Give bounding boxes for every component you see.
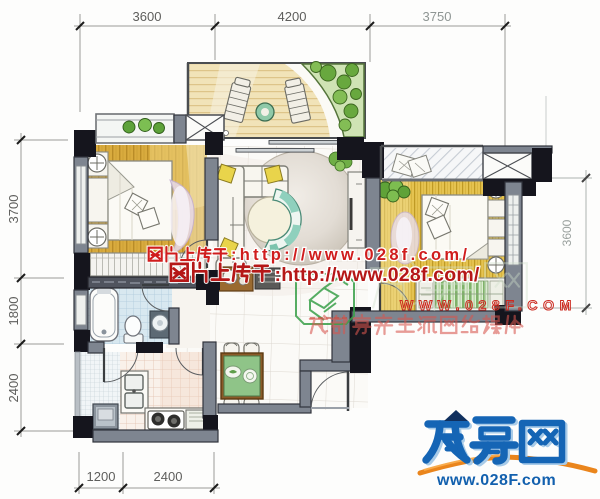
- svg-text:1200: 1200: [87, 469, 116, 484]
- svg-text:3600: 3600: [133, 9, 162, 24]
- svg-text:3600: 3600: [560, 219, 574, 246]
- svg-text:3750: 3750: [423, 9, 452, 24]
- svg-text:4200: 4200: [278, 9, 307, 24]
- svg-text:WWW.028F.COM: WWW.028F.COM: [400, 297, 577, 313]
- svg-text::http://www.028f.com/: :http://www.028f.com/: [275, 264, 480, 286]
- svg-text:2400: 2400: [6, 374, 21, 403]
- svg-text:www.028F.com: www.028F.com: [436, 472, 556, 489]
- svg-text::http://www.028f.com/: :http://www.028f.com/: [231, 246, 470, 264]
- svg-text:1800: 1800: [6, 297, 21, 326]
- svg-text:2400: 2400: [154, 469, 183, 484]
- svg-text:3700: 3700: [6, 195, 21, 224]
